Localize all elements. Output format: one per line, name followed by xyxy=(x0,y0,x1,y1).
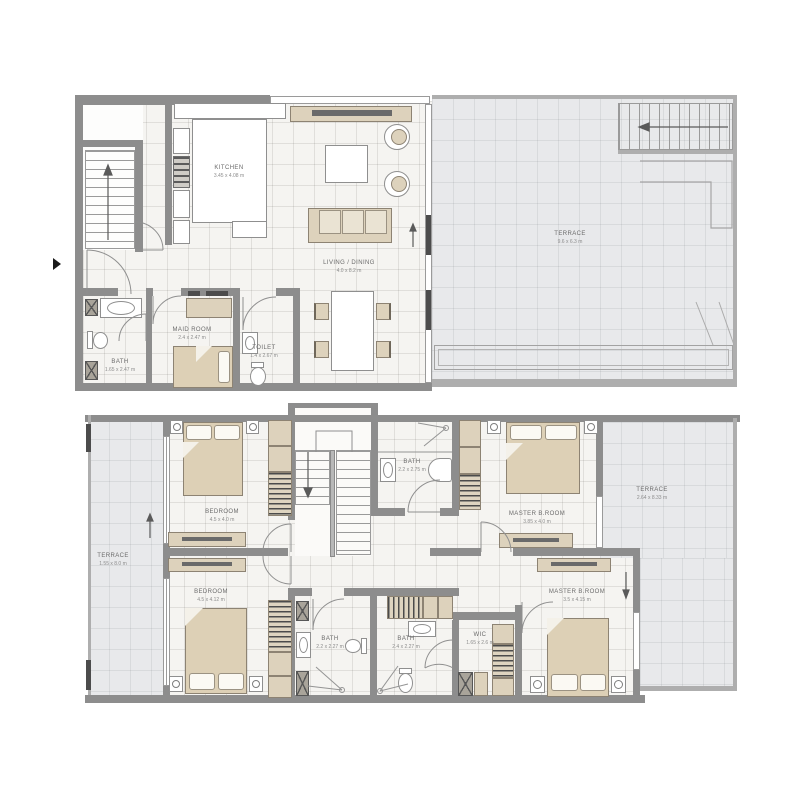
room-label-terrace: TERRACE 9.6 x 6.3 m xyxy=(554,231,585,245)
room-label-kitchen: KITCHEN 3.45 x 4.08 m xyxy=(214,165,244,179)
room-name: TERRACE xyxy=(97,553,128,561)
staircase xyxy=(85,150,135,249)
closet-hanging xyxy=(492,644,514,678)
wall xyxy=(293,296,300,383)
entry-marker-icon xyxy=(53,258,61,270)
dresser-handle xyxy=(182,537,232,541)
window-mullion xyxy=(166,436,167,544)
sliding-window xyxy=(596,496,603,548)
shaft xyxy=(85,361,98,380)
bed-pillow xyxy=(214,425,240,440)
toilet-tank xyxy=(361,638,367,654)
wall xyxy=(513,548,640,556)
window-frame xyxy=(206,291,228,296)
kitchen-appliance xyxy=(173,190,190,218)
terrace-floor-right xyxy=(640,558,734,686)
room-dims: 2.64 x 8.33 m xyxy=(636,495,667,502)
armchair-cushion xyxy=(391,129,407,145)
dining-chair xyxy=(376,303,391,320)
closet-box xyxy=(423,596,438,619)
planter-inner xyxy=(438,349,729,366)
room-label-master-bedroom-1: MASTER B.ROOM 3.85 x 4.0 m xyxy=(509,511,565,525)
wall xyxy=(276,288,300,296)
closet-box xyxy=(438,596,453,619)
room-dims: 2.2 x 2.75 m xyxy=(398,467,426,474)
room-label-maid-room: MAID ROOM 2.4 x 2.47 m xyxy=(173,327,212,341)
room-dims: 4.5 x 4.0 m xyxy=(205,517,239,524)
room-label-wic: WIC 1.65 x 2.6 m xyxy=(466,632,494,646)
terrace-parapet xyxy=(432,379,737,387)
room-dims: 3.5 x 4.15 m xyxy=(549,597,605,604)
staircase-flight xyxy=(295,450,330,505)
stair-rail xyxy=(330,450,335,557)
toilet-bowl xyxy=(250,367,266,386)
room-dims: 1.4 x 2.67 m xyxy=(250,353,278,360)
closet-box xyxy=(458,672,473,696)
terrace-parapet xyxy=(640,686,737,691)
kitchen-sink-unit xyxy=(173,128,190,154)
cooktop xyxy=(173,156,190,188)
armchair-cushion xyxy=(391,176,407,192)
wardrobe-box xyxy=(459,420,481,447)
wall xyxy=(233,296,240,383)
tv xyxy=(312,110,392,116)
wall xyxy=(515,605,522,700)
dresser-handle xyxy=(551,562,597,566)
room-label-living-dining: LIVING / DINING 4.0 x 8.2 m xyxy=(323,260,375,274)
wall xyxy=(371,508,405,516)
lamp xyxy=(249,423,257,431)
window-frame xyxy=(426,290,431,330)
wall xyxy=(633,556,640,612)
lamp xyxy=(173,423,181,431)
sliding-window xyxy=(633,612,640,670)
room-name: BATH xyxy=(392,636,420,644)
wall xyxy=(135,140,143,252)
closet-box xyxy=(492,624,514,644)
wall xyxy=(633,670,640,700)
room-name: TERRACE xyxy=(636,487,667,495)
sink-basin xyxy=(383,462,393,478)
kitchen-appliance xyxy=(173,220,190,244)
dresser-handle xyxy=(513,538,559,542)
terrace-parapet xyxy=(432,95,737,99)
wall xyxy=(344,588,378,596)
exterior-staircase xyxy=(618,103,733,150)
room-label-toilet: TOILET 1.4 x 2.67 m xyxy=(250,345,278,359)
bed-pillow xyxy=(545,425,577,440)
lamp xyxy=(533,680,542,689)
wardrobe-hanging xyxy=(268,472,292,516)
room-name: MASTER B.ROOM xyxy=(549,589,605,597)
sink-basin xyxy=(107,301,135,315)
toilet-bowl xyxy=(345,639,361,653)
bed-pillow xyxy=(218,673,244,690)
wall xyxy=(371,408,378,516)
bed-pillow xyxy=(218,351,230,383)
wall xyxy=(85,415,740,422)
room-label-bath-upper: BATH 2.2 x 2.75 m xyxy=(398,459,426,473)
wall xyxy=(378,588,459,596)
room-dims: 4.0 x 8.2 m xyxy=(323,268,375,275)
room-dims: 1.65 x 2.47 m xyxy=(105,367,135,374)
wall xyxy=(288,403,378,408)
wardrobe-box xyxy=(268,420,292,446)
room-dims: 3.85 x 4.0 m xyxy=(509,519,565,526)
terrace-parapet xyxy=(733,95,737,387)
maid-shelf xyxy=(186,298,232,318)
room-name: MASTER B.ROOM xyxy=(509,511,565,519)
lamp xyxy=(614,680,623,689)
room-dims: 9.6 x 6.3 m xyxy=(554,239,585,246)
bed-pillow xyxy=(551,674,578,691)
bed-pillow xyxy=(580,674,606,691)
kitchen-counter xyxy=(174,103,286,119)
toilet-bowl xyxy=(93,332,108,349)
wall xyxy=(146,288,153,296)
wardrobe-hanging xyxy=(459,474,481,510)
sofa-cushion xyxy=(342,210,364,234)
room-dims: 4.5 x 4.12 m xyxy=(194,597,228,604)
wall xyxy=(370,596,377,700)
wall xyxy=(165,101,172,245)
room-name: WIC xyxy=(466,632,494,640)
closet-box xyxy=(492,678,514,696)
room-name: BATH xyxy=(316,636,344,644)
room-name: TOILET xyxy=(250,345,278,353)
wall xyxy=(146,296,152,383)
dining-chair xyxy=(376,341,391,358)
room-label-bath-right: BATH 2.4 x 2.27 m xyxy=(392,636,420,650)
lamp xyxy=(252,680,260,688)
room-dims: 2.2 x 2.27 m xyxy=(316,644,344,651)
room-dims: 1.55 x 8.0 m xyxy=(97,561,128,568)
window-mullion xyxy=(166,578,167,686)
bed-pillow xyxy=(186,425,212,440)
wardrobe-box xyxy=(268,676,292,698)
window-frame xyxy=(86,660,91,690)
room-label-bedroom-2: BEDROOM 4.5 x 4.12 m xyxy=(194,589,228,603)
shaft xyxy=(296,601,309,621)
staircase-flight xyxy=(336,450,371,555)
shaft xyxy=(296,671,309,696)
room-label-terrace-left: TERRACE 1.55 x 8.0 m xyxy=(97,553,128,567)
room-label-bath: BATH 1.65 x 2.47 m xyxy=(105,359,135,373)
sofa-cushion xyxy=(365,210,387,234)
window-frame xyxy=(86,424,91,452)
room-label-terrace-right: TERRACE 2.64 x 8.33 m xyxy=(636,487,667,501)
lamp xyxy=(587,423,595,431)
room-name: LIVING / DINING xyxy=(323,260,375,268)
bathtub xyxy=(428,458,452,482)
sink-basin xyxy=(413,624,431,634)
bed-pillow xyxy=(189,673,215,690)
room-name: KITCHEN xyxy=(214,165,244,173)
terrace-parapet xyxy=(88,415,91,697)
window-frame xyxy=(188,291,200,296)
wall xyxy=(453,612,520,620)
room-name: BEDROOM xyxy=(194,589,228,597)
sofa-cushion xyxy=(319,210,341,234)
dresser-handle xyxy=(182,562,232,566)
room-label-master-bedroom-2: MASTER B.ROOM 3.5 x 4.15 m xyxy=(549,589,605,603)
room-dims: 1.65 x 2.6 m xyxy=(466,640,494,647)
dining-chair xyxy=(314,341,329,358)
floorplan-canvas: KITCHEN 3.45 x 4.08 m LIVING / DINING 4.… xyxy=(0,0,800,800)
room-label-bath-left: BATH 2.2 x 2.27 m xyxy=(316,636,344,650)
coffee-table xyxy=(325,145,368,183)
room-dims: 2.4 x 2.47 m xyxy=(173,335,212,342)
stair-edge xyxy=(618,150,733,154)
closet-box xyxy=(474,672,488,696)
wall xyxy=(163,548,288,556)
lamp xyxy=(490,423,498,431)
room-label-bedroom-1: BEDROOM 4.5 x 4.0 m xyxy=(205,509,239,523)
wall xyxy=(288,588,312,596)
bed-pillow xyxy=(510,425,542,440)
wardrobe-box xyxy=(268,652,292,676)
room-name: TERRACE xyxy=(554,231,585,239)
wall xyxy=(75,140,143,147)
wardrobe-hanging xyxy=(268,600,292,652)
room-name: BATH xyxy=(398,459,426,467)
wall xyxy=(440,508,459,516)
room-name: MAID ROOM xyxy=(173,327,212,335)
room-name: BATH xyxy=(105,359,135,367)
window-band xyxy=(270,96,430,104)
planter xyxy=(434,345,733,370)
toilet-bowl xyxy=(398,673,413,693)
closet-hanging xyxy=(387,596,423,619)
dining-table xyxy=(331,291,374,371)
window-frame xyxy=(426,215,431,255)
wardrobe-box xyxy=(459,447,481,474)
kitchen-island-ext xyxy=(232,221,267,238)
wardrobe-box xyxy=(268,446,292,472)
room-dims: 2.4 x 2.27 m xyxy=(392,644,420,651)
room-dims: 3.45 x 4.08 m xyxy=(214,173,244,180)
terrace-parapet xyxy=(733,418,737,690)
wall xyxy=(452,418,459,512)
wall xyxy=(75,288,118,296)
shaft xyxy=(85,299,98,316)
room-name: BEDROOM xyxy=(205,509,239,517)
wall xyxy=(430,548,481,556)
sink-basin xyxy=(299,637,308,653)
dining-chair xyxy=(314,303,329,320)
lamp xyxy=(172,680,180,688)
